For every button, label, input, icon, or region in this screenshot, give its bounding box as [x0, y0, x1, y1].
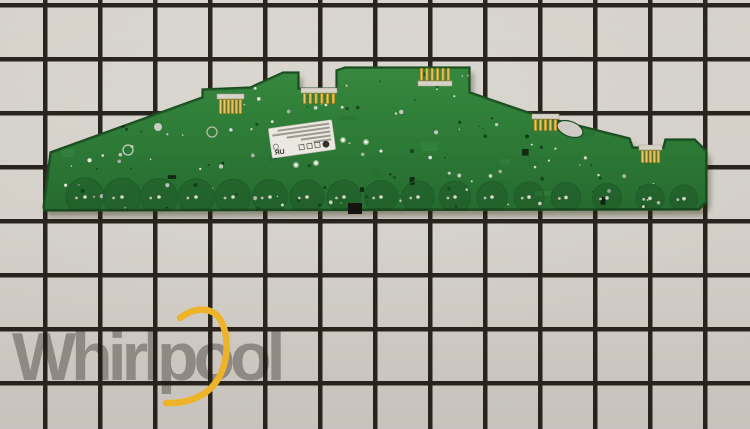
via-dot — [72, 119, 75, 122]
via-dot — [507, 204, 509, 206]
component-chip — [522, 149, 529, 156]
connector-pin-highlight — [654, 151, 655, 162]
via-dot — [150, 158, 152, 160]
touch-pad-center-dot — [342, 195, 346, 199]
via-dot — [531, 144, 533, 146]
via-dot — [597, 71, 599, 73]
via-dot — [109, 116, 113, 120]
touch-pad-circle — [439, 181, 470, 212]
via-dot — [584, 156, 587, 159]
connector-pin-highlight — [535, 120, 536, 130]
via-dot — [540, 177, 544, 181]
via-dot — [534, 166, 537, 169]
via-dot — [251, 154, 255, 158]
led-dot — [315, 162, 318, 165]
via-dot — [153, 77, 155, 79]
via-dot — [458, 121, 461, 124]
via-dot — [346, 107, 349, 110]
whirlpool-swoosh-icon — [166, 310, 227, 403]
via-dot — [592, 191, 594, 193]
component-chip — [360, 187, 364, 192]
touch-pad-center-dot — [120, 195, 124, 199]
via-dot — [356, 106, 360, 110]
via-dot — [540, 146, 543, 149]
via-dot — [489, 174, 493, 178]
touch-pad-via — [261, 197, 264, 200]
via-dot — [670, 111, 673, 114]
via-dot — [71, 165, 72, 166]
via-dot — [208, 164, 210, 166]
copper-patch — [76, 102, 93, 108]
via-dot — [117, 159, 121, 163]
touch-pad-center-dot — [682, 197, 686, 201]
via-dot — [96, 168, 98, 170]
via-dot — [554, 147, 556, 149]
connector-pin-highlight — [220, 100, 221, 113]
label-certification-mark: ЯU — [274, 149, 285, 157]
led-dot — [295, 164, 298, 167]
via-dot — [399, 195, 401, 197]
pad-dot — [154, 123, 162, 131]
connector-pin-highlight — [550, 120, 551, 130]
connector-pin-highlight — [224, 100, 225, 113]
via-dot — [428, 156, 432, 160]
via-dot — [395, 112, 397, 114]
via-dot — [119, 153, 123, 157]
via-dot — [599, 176, 603, 180]
via-dot — [482, 128, 483, 129]
touch-pad-via — [676, 198, 679, 201]
connector-body — [418, 81, 452, 86]
via-dot — [57, 116, 61, 120]
via-dot — [591, 164, 593, 166]
via-dot — [399, 200, 401, 202]
connector-pin-highlight — [432, 69, 433, 80]
touch-pad-center-dot — [527, 195, 531, 199]
via-dot — [66, 91, 68, 93]
via-dot — [287, 110, 291, 114]
via-dot — [393, 176, 396, 179]
via-dot — [399, 110, 403, 114]
via-dot — [323, 186, 326, 189]
touch-pad-center-dot — [648, 197, 652, 201]
connector-body — [217, 94, 244, 99]
via-dot — [240, 82, 244, 86]
via-dot — [108, 119, 112, 123]
via-dot — [159, 80, 163, 84]
touch-pad-via — [335, 197, 338, 200]
copper-patch — [90, 110, 99, 121]
touch-pad-via — [642, 198, 645, 201]
via-dot — [491, 117, 493, 119]
via-dot — [304, 79, 306, 81]
via-dot — [471, 180, 473, 182]
touch-pad-circle — [551, 183, 580, 212]
via-dot — [64, 184, 67, 187]
touch-pad-center-dot — [605, 196, 609, 200]
touch-pad-via — [599, 197, 602, 200]
via-dot — [229, 128, 233, 132]
via-dot — [414, 99, 416, 101]
via-dot — [346, 85, 348, 87]
connector-pin-highlight — [310, 94, 311, 103]
via-dot — [306, 106, 307, 107]
touch-pad-via — [149, 197, 152, 200]
via-dot — [462, 75, 463, 76]
via-dot — [525, 134, 529, 138]
component-chip — [131, 111, 136, 117]
touch-pad-center-dot — [379, 195, 383, 199]
via-dot — [140, 131, 142, 133]
touch-pad-via — [447, 197, 450, 200]
connector-pin-highlight — [437, 69, 438, 80]
via-dot — [448, 172, 451, 175]
via-dot — [389, 173, 391, 175]
via-dot — [578, 101, 581, 104]
via-dot — [341, 106, 344, 109]
via-dot — [257, 97, 261, 101]
copper-patch — [340, 116, 356, 120]
via-dot — [155, 94, 156, 95]
copper-patch — [527, 161, 539, 166]
via-dot — [483, 134, 487, 138]
connector-pin-highlight — [232, 100, 233, 113]
connector-pin-highlight — [442, 69, 443, 80]
via-dot — [308, 164, 312, 168]
component-chip — [631, 118, 636, 122]
via-dot — [230, 132, 231, 133]
via-dot — [410, 149, 414, 153]
touch-pad-center-dot — [268, 195, 272, 199]
component-chip — [168, 175, 176, 179]
via-dot — [348, 142, 350, 144]
touch-pad-circle — [593, 183, 622, 212]
via-dot — [314, 106, 318, 110]
via-dot — [255, 123, 258, 126]
connector-pin-highlight — [426, 69, 427, 80]
via-dot — [219, 79, 221, 81]
touch-pad-via — [372, 197, 375, 200]
via-dot — [638, 134, 642, 138]
touch-pad-via — [558, 197, 561, 200]
touch-pad-via — [224, 197, 227, 200]
via-dot — [457, 174, 461, 178]
via-dot — [625, 107, 627, 109]
touch-pad-center-dot — [231, 195, 235, 199]
via-dot — [125, 128, 128, 131]
via-dot — [130, 168, 132, 170]
led-dot — [365, 141, 368, 144]
via-dot — [597, 174, 599, 176]
via-dot — [221, 162, 224, 165]
via-dot — [182, 134, 184, 136]
via-dot — [199, 168, 201, 170]
via-dot — [320, 72, 323, 75]
product-photo: Whirlpool — [0, 0, 750, 429]
via-dot — [361, 153, 365, 157]
pin-connector — [532, 114, 559, 131]
via-dot — [478, 125, 480, 127]
touch-pad-via — [75, 197, 78, 200]
touch-pad-center-dot — [416, 195, 420, 199]
via-dot — [561, 116, 564, 119]
via-dot — [613, 118, 615, 120]
connector-pin-highlight — [448, 69, 449, 80]
via-dot — [508, 82, 510, 84]
via-dot — [250, 128, 252, 130]
via-dot — [87, 158, 91, 162]
via-dot — [677, 106, 680, 109]
via-dot — [65, 135, 67, 137]
via-dot — [453, 95, 455, 97]
copper-patch — [500, 159, 510, 165]
touch-pad-via — [409, 197, 412, 200]
touch-pad-center-dot — [305, 195, 309, 199]
connector-pin-highlight — [333, 94, 334, 103]
connector-pin-highlight — [555, 120, 556, 130]
connector-pin-highlight — [421, 69, 422, 80]
copper-patch — [421, 142, 438, 151]
via-dot — [271, 120, 274, 123]
touch-pad-circle — [365, 181, 398, 214]
component-chip — [348, 203, 362, 214]
connector-pin-highlight — [304, 94, 305, 103]
via-dot — [434, 130, 438, 134]
via-dot — [540, 106, 544, 110]
via-dot — [495, 123, 498, 126]
via-dot — [636, 98, 638, 100]
connector-pin-highlight — [228, 100, 229, 113]
via-dot — [254, 87, 257, 90]
connector-pin-highlight — [646, 151, 647, 162]
via-dot — [166, 133, 168, 135]
via-dot — [379, 81, 381, 83]
via-dot — [101, 154, 104, 157]
touch-pad-via — [484, 197, 487, 200]
via-dot — [244, 104, 246, 106]
via-dot — [695, 129, 698, 132]
connector-pin-highlight — [321, 94, 322, 103]
touch-pad-center-dot — [564, 196, 568, 200]
connector-pin-highlight — [642, 151, 643, 162]
copper-patch — [585, 117, 590, 124]
via-dot — [579, 164, 581, 166]
connector-body — [301, 88, 337, 93]
touch-pad-via — [521, 197, 524, 200]
via-dot — [685, 117, 688, 120]
via-dot — [309, 76, 312, 79]
touch-pad-center-dot — [453, 195, 457, 199]
connector-pin-highlight — [236, 100, 237, 113]
touch-pad-center-dot — [157, 195, 161, 199]
via-dot — [548, 159, 550, 161]
via-dot — [660, 95, 661, 96]
touch-pad-via — [298, 197, 301, 200]
connector-body — [639, 145, 662, 150]
touch-pad-center-dot — [194, 195, 198, 199]
via-dot — [134, 95, 135, 96]
via-dot — [691, 90, 694, 93]
touch-pad-circle — [477, 182, 508, 213]
via-dot — [114, 125, 116, 127]
touch-pad-via — [112, 197, 115, 200]
copper-patch — [373, 170, 382, 178]
via-dot — [444, 157, 446, 159]
connector-pin-highlight — [240, 100, 241, 113]
via-dot — [219, 164, 223, 168]
connector-pin-highlight — [315, 94, 316, 103]
led-dot — [342, 139, 345, 142]
via-dot — [305, 77, 309, 81]
via-dot — [459, 129, 460, 130]
via-dot — [436, 88, 438, 90]
copper-patch — [62, 149, 74, 158]
touch-pad-center-dot — [83, 195, 87, 199]
connector-pin-highlight — [545, 120, 546, 130]
pcb-photo: ЯU — [0, 0, 750, 429]
touch-pad-circle — [402, 181, 434, 213]
connector-pin-highlight — [650, 151, 651, 162]
via-dot — [597, 116, 600, 119]
pin-connector — [639, 145, 662, 163]
connector-pin-highlight — [327, 94, 328, 103]
touch-pad-circle — [514, 182, 544, 212]
via-dot — [499, 170, 502, 173]
connector-pin-highlight — [540, 120, 541, 130]
via-dot — [622, 174, 626, 178]
connector-pin-highlight — [658, 151, 659, 162]
connector-body — [532, 114, 559, 119]
touch-pad-via — [186, 197, 189, 200]
via-dot — [379, 149, 382, 152]
touch-pad-center-dot — [490, 195, 494, 199]
